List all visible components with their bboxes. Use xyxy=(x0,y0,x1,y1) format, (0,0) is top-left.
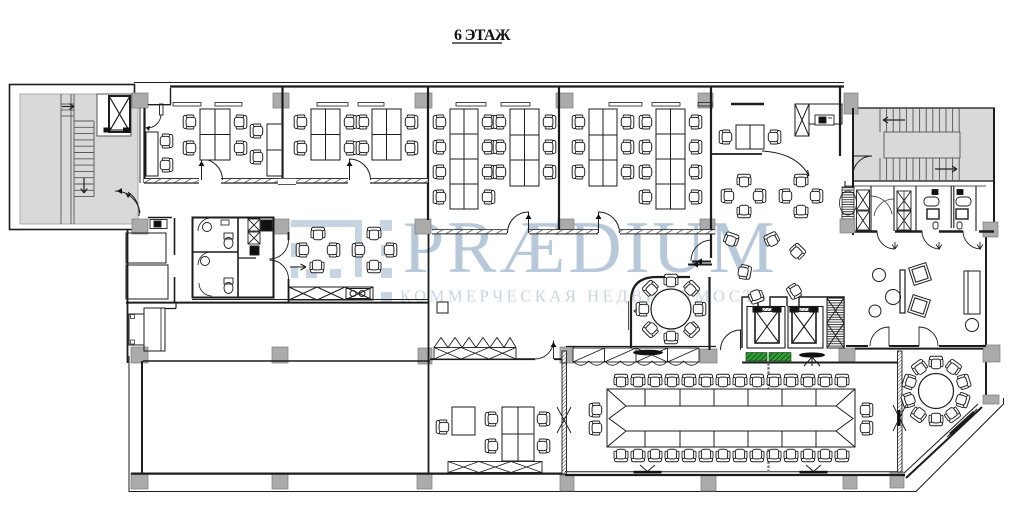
svg-text:6 ЭТАЖ: 6 ЭТАЖ xyxy=(454,27,511,44)
svg-text:КОММЕРЧЕСКАЯ НЕДВИЖИМОСТЬ: КОММЕРЧЕСКАЯ НЕДВИЖИМОСТЬ xyxy=(400,287,770,306)
svg-text:PRÆDIUM: PRÆDIUM xyxy=(403,207,778,289)
